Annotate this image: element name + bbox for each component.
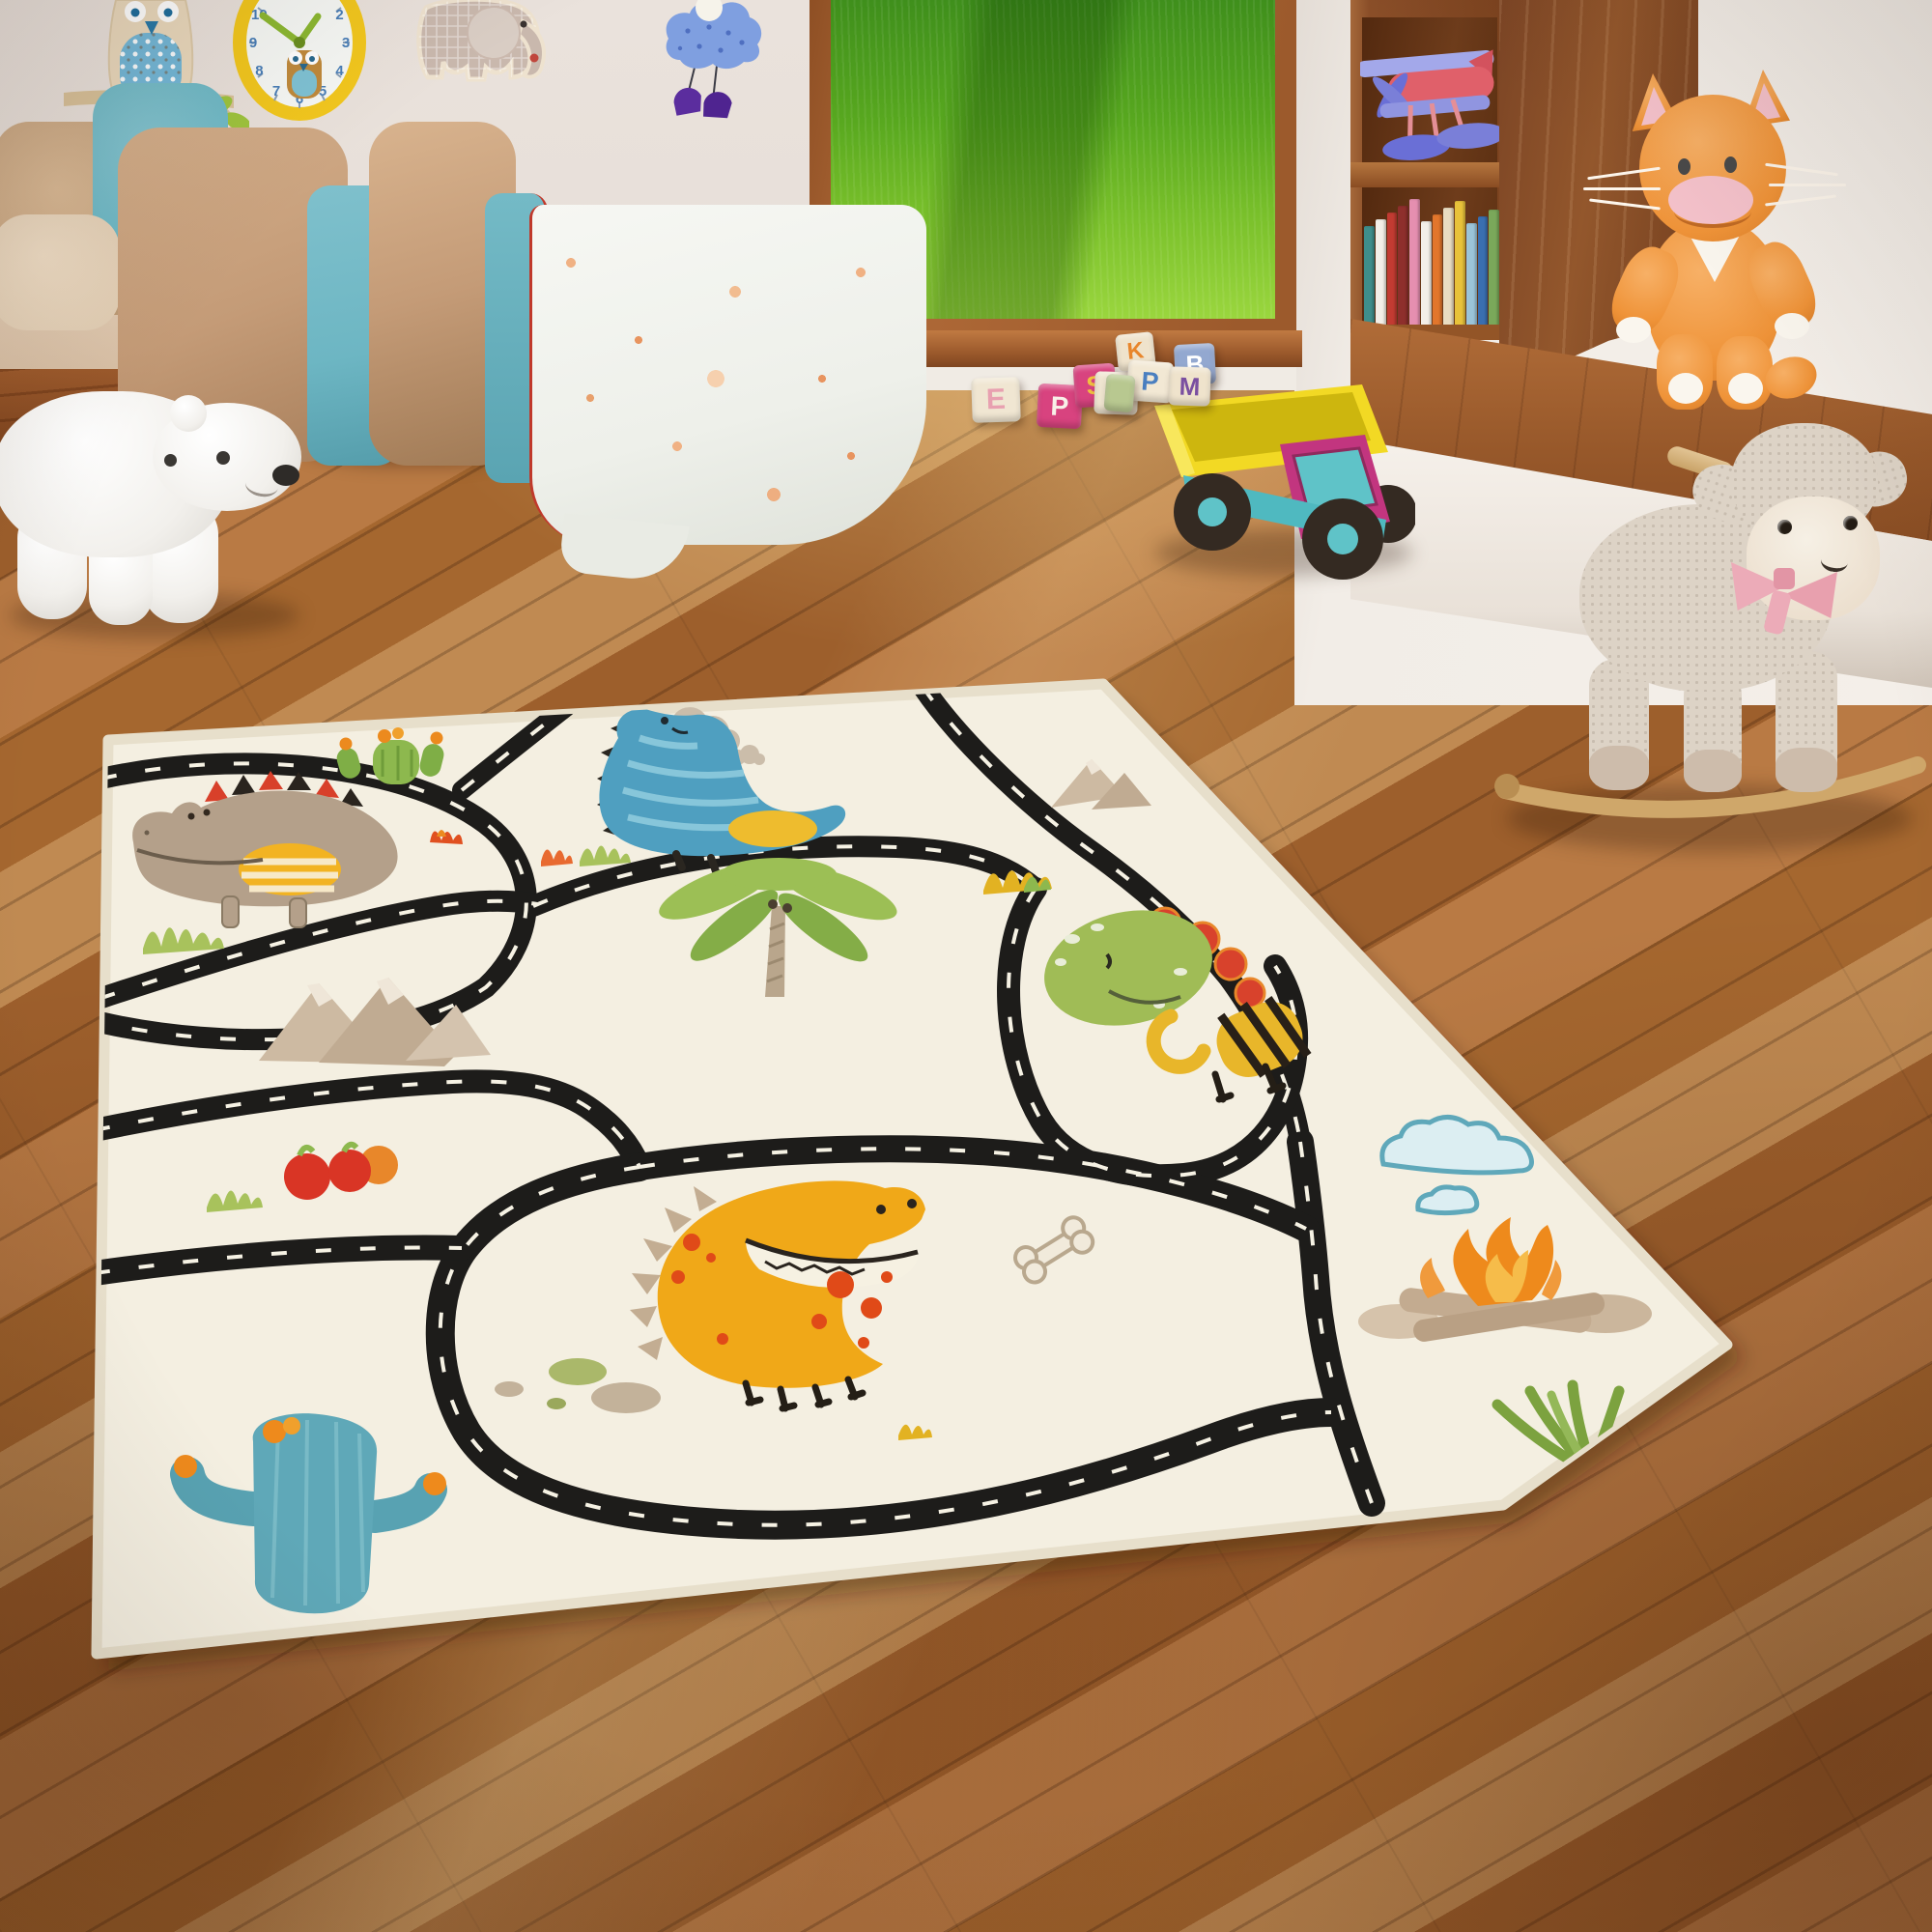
cat-smile <box>1674 195 1751 228</box>
bear-eye <box>216 451 230 465</box>
toy-dump-truck <box>1145 377 1415 580</box>
cat-whisker <box>1583 187 1661 190</box>
sheep-eye <box>1777 520 1792 534</box>
polar-bear-toy <box>0 382 319 642</box>
cat-eye <box>1724 156 1737 173</box>
alphabet-block <box>1103 374 1135 412</box>
sheep-eye <box>1843 516 1858 530</box>
playroom-scene: 1 2 3 4 5 6 7 8 9 10 11 12 <box>0 0 1932 1932</box>
cat-paw <box>1616 317 1651 343</box>
cat-sole <box>1668 373 1703 404</box>
duvet-patterned <box>529 205 926 545</box>
cat-sole <box>1728 373 1763 404</box>
bear-ear <box>170 395 207 432</box>
cat-paw <box>1775 313 1809 339</box>
alphabet-block: E <box>971 377 1021 423</box>
bear-eye <box>164 454 177 467</box>
rocking-sheep-toy <box>1488 415 1932 860</box>
alphabet-block: M <box>1168 366 1210 406</box>
pillow-cream <box>0 214 120 330</box>
cat-whisker <box>1769 184 1846 186</box>
plush-cat-toy <box>1618 68 1811 435</box>
cat-eye <box>1678 158 1690 175</box>
